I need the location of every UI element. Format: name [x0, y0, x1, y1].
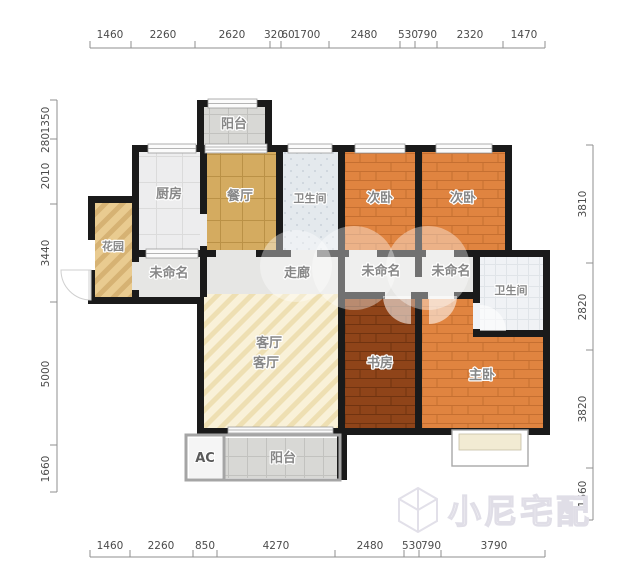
dim-label: 280 — [40, 133, 52, 153]
dim-label: 3820 — [577, 396, 589, 423]
dim-label: 1700 — [294, 29, 321, 41]
label-dining: 餐厅 — [226, 188, 253, 204]
dim-label: 4270 — [263, 540, 290, 552]
label-unnamed-left: 未命名 — [148, 265, 188, 281]
label-garden: 花园 — [102, 239, 124, 253]
label-balcony-bottom: 阳台 — [270, 450, 296, 466]
wall-segment — [197, 297, 204, 435]
wall-segment — [505, 145, 512, 257]
opening-dining-corridor — [216, 250, 256, 257]
label-bedroom-second-right: 次卧 — [450, 190, 476, 206]
label-study: 书房 — [367, 355, 393, 371]
floorplan-page: 阳台 厨房 餐厅 卫生间 次卧 次卧 花园 未命名 走廊 未命名 未命名 卫生间… — [0, 0, 640, 588]
opening-garden-hall — [132, 262, 139, 290]
dim-ticks-top — [90, 41, 545, 48]
dim-label: 2260 — [150, 29, 177, 41]
opening-kitchen-dining — [200, 214, 207, 246]
opening-bathroom-right-door — [473, 303, 480, 329]
label-bathroom-right: 卫生间 — [495, 283, 528, 297]
dim-label: 2480 — [351, 29, 378, 41]
dim-label: 1460 — [97, 540, 124, 552]
dim-label: 2620 — [219, 29, 246, 41]
label-ac: AC — [195, 451, 215, 466]
label-bedroom-second-left: 次卧 — [367, 190, 393, 206]
label-master: 主卧 — [469, 367, 495, 383]
watermark-text: 小尼宅配 — [448, 492, 592, 531]
dim-label: 1660 — [40, 456, 52, 483]
dim-label: 2320 — [457, 29, 484, 41]
wall-segment — [415, 292, 422, 432]
dim-label: 790 — [417, 29, 437, 41]
dim-label: 1350 — [40, 107, 52, 134]
dim-label: 2010 — [40, 163, 52, 190]
dim-label: 3810 — [577, 191, 589, 218]
wall-segment — [473, 330, 550, 337]
dim-label: 850 — [195, 540, 215, 552]
wall-segment — [543, 292, 550, 435]
dim-label: 2480 — [357, 540, 384, 552]
label-unnamed-right: 未命名 — [430, 263, 470, 279]
label-corridor: 走廊 — [284, 265, 310, 281]
dim-label: 1470 — [511, 29, 538, 41]
wall-segment — [200, 257, 207, 297]
wall-segment — [88, 297, 204, 304]
dim-label: 2820 — [577, 294, 589, 321]
watermark: 小尼宅配 — [399, 488, 592, 532]
dim-label: 3440 — [40, 240, 52, 267]
door-swing-entry — [61, 270, 91, 300]
dim-label: 3790 — [481, 540, 508, 552]
label-bathroom-top: 卫生间 — [294, 191, 327, 205]
dim-label: 790 — [421, 540, 441, 552]
sliding-door-dining-balcony — [205, 144, 267, 153]
dim-label: 5000 — [40, 361, 52, 388]
label-balcony-top: 阳台 — [221, 116, 247, 132]
dim-label: 530 — [402, 540, 422, 552]
label-living-upper: 客厅 — [256, 335, 282, 351]
bay-window-sill — [459, 434, 521, 450]
label-living-lower: 客厅 — [253, 355, 279, 371]
label-unnamed-middle: 未命名 — [360, 263, 400, 279]
dim-label: 530 — [398, 29, 418, 41]
brand-cube-icon — [399, 488, 437, 532]
opening-entry-door — [88, 240, 95, 270]
floorplan-canvas: 阳台 厨房 餐厅 卫生间 次卧 次卧 花园 未命名 走廊 未命名 未命名 卫生间… — [0, 0, 640, 588]
label-kitchen: 厨房 — [156, 186, 182, 202]
dim-label: 1460 — [97, 29, 124, 41]
wall-segment — [338, 292, 345, 435]
wall-segment — [197, 100, 204, 152]
dim-ticks-left — [50, 100, 57, 492]
dim-label: 2260 — [148, 540, 175, 552]
wall-segment — [88, 196, 139, 203]
